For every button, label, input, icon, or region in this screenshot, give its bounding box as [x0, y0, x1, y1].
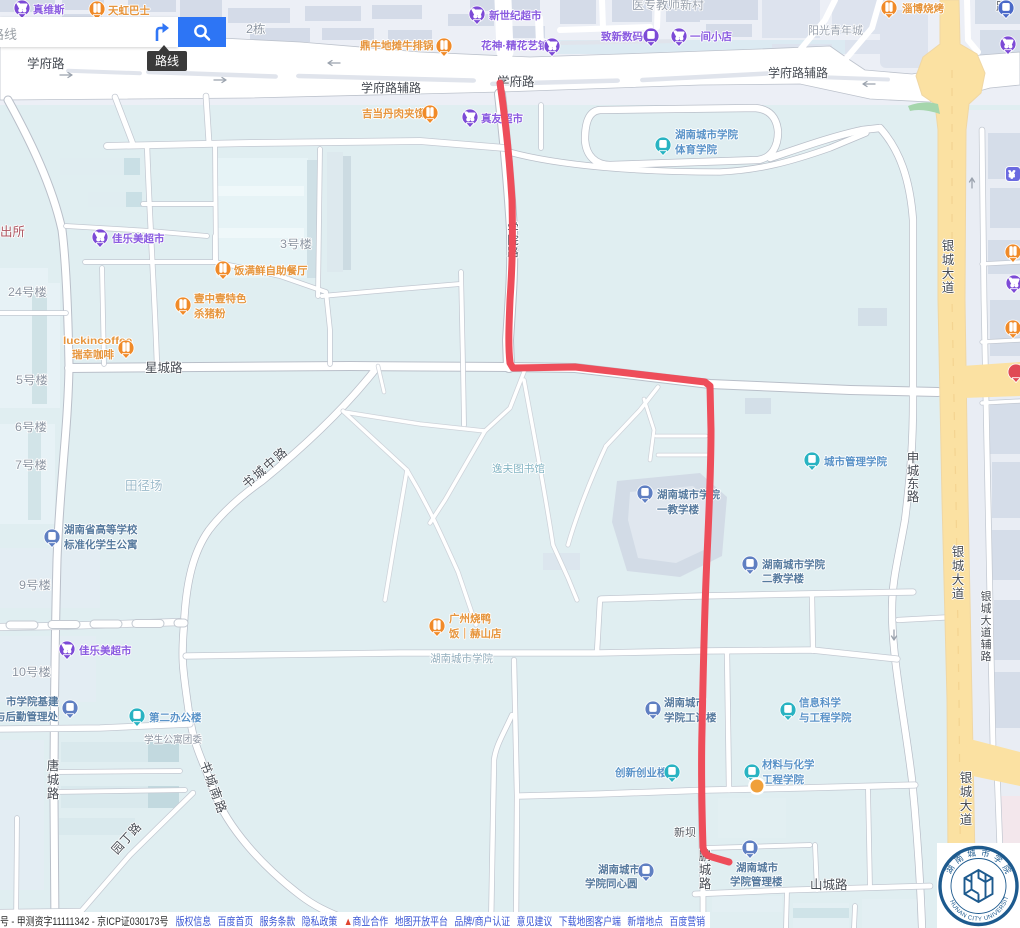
svg-text:壹中壹特色: 壹中壹特色	[194, 292, 247, 305]
svg-text:城市管理学院: 城市管理学院	[824, 455, 887, 468]
svg-text:新坝: 新坝	[674, 825, 696, 839]
svg-text:湖南城市: 湖南城市	[598, 863, 640, 876]
svg-text:湖南省高等学校: 湖南省高等学校	[64, 523, 138, 536]
svg-text:银城大道: 银城大道	[942, 239, 955, 295]
svg-text:学院同心圆: 学院同心圆	[585, 877, 638, 890]
svg-text:鼎牛地摊牛排锅: 鼎牛地摊牛排锅	[360, 39, 434, 52]
svg-text:医专教师新村: 医专教师新村	[632, 0, 704, 12]
svg-text:吉当丹肉夹馍: 吉当丹肉夹馍	[362, 107, 425, 120]
svg-text:花神·精花艺铺: 花神·精花艺铺	[481, 39, 549, 52]
svg-text:天虹巴士: 天虹巴士	[108, 4, 150, 17]
svg-text:10号楼: 10号楼	[12, 665, 51, 679]
svg-text:一间小店: 一间小店	[690, 30, 732, 43]
svg-text:9号楼: 9号楼	[19, 578, 52, 592]
svg-text:逸夫图书馆: 逸夫图书馆	[492, 462, 545, 475]
svg-text:湖南城市: 湖南城市	[736, 861, 778, 874]
svg-text:星城路: 星城路	[145, 360, 183, 375]
svg-text:市学院基建: 市学院基建	[6, 695, 59, 708]
svg-text:2栋: 2栋	[246, 22, 266, 36]
svg-text:5号楼: 5号楼	[16, 373, 49, 387]
svg-text:标准化学生公寓: 标准化学生公寓	[63, 538, 138, 551]
svg-text:湖南城市学院: 湖南城市学院	[675, 128, 738, 141]
svg-text:阳光青年城: 阳光青年城	[808, 23, 863, 37]
svg-text:出所: 出所	[0, 225, 25, 239]
svg-text:山城路: 山城路	[810, 877, 848, 892]
svg-text:学院工训楼: 学院工训楼	[664, 711, 717, 724]
svg-text:¥: ¥	[1008, 170, 1015, 181]
svg-text:工程学院: 工程学院	[762, 773, 804, 786]
svg-text:学府路: 学府路	[27, 56, 65, 71]
svg-text:7号楼: 7号楼	[15, 458, 48, 472]
svg-text:一教学楼: 一教学楼	[657, 503, 699, 516]
svg-text:信息科学: 信息科学	[799, 696, 841, 709]
svg-text:与工程学院: 与工程学院	[799, 711, 852, 724]
svg-text:学府路辅路: 学府路辅路	[361, 80, 421, 95]
svg-text:广州烧鸭: 广州烧鸭	[449, 612, 491, 625]
svg-text:与后勤管理处: 与后勤管理处	[0, 710, 58, 723]
svg-text:材料与化学: 材料与化学	[761, 758, 815, 771]
svg-text:3号楼: 3号楼	[280, 237, 313, 251]
svg-text:学府路辅路: 学府路辅路	[768, 65, 828, 80]
svg-text:学院管理楼: 学院管理楼	[730, 875, 783, 888]
svg-text:体育学院: 体育学院	[675, 143, 717, 156]
svg-text:田径场: 田径场	[125, 479, 163, 493]
svg-text:佳乐美超市: 佳乐美超市	[79, 644, 132, 657]
svg-text:致新数码: 致新数码	[601, 30, 643, 43]
svg-text:饭｜赫山店: 饭｜赫山店	[448, 627, 502, 640]
svg-text:杀猪粉: 杀猪粉	[194, 307, 226, 320]
svg-text:银城大道: 银城大道	[960, 771, 973, 827]
svg-text:新世纪超市: 新世纪超市	[489, 9, 542, 22]
svg-text:24号楼: 24号楼	[8, 285, 47, 299]
svg-text:申城东路: 申城东路	[907, 451, 920, 504]
svg-text:瑞幸咖啡: 瑞幸咖啡	[72, 348, 114, 361]
svg-text:佳乐美超市: 佳乐美超市	[112, 232, 165, 245]
svg-text:湖南城市学院: 湖南城市学院	[430, 652, 493, 665]
svg-text:创新创业楼: 创新创业楼	[614, 766, 668, 779]
svg-text:湖南城市学院: 湖南城市学院	[762, 558, 825, 571]
svg-text:唐城路: 唐城路	[47, 758, 60, 801]
svg-text:真维斯: 真维斯	[33, 3, 65, 16]
svg-text:淄博烧烤: 淄博烧烤	[902, 2, 944, 15]
svg-text:银城大道: 银城大道	[952, 545, 965, 601]
svg-text:学生公寓团委: 学生公寓团委	[144, 733, 202, 746]
svg-text:饭满鲜自助餐厅: 饭满鲜自助餐厅	[233, 264, 308, 277]
svg-text:二教学楼: 二教学楼	[762, 572, 804, 585]
svg-text:6号楼: 6号楼	[15, 420, 48, 434]
svg-text:银城大道辅路: 银城大道辅路	[981, 589, 992, 663]
svg-text:第二办公楼: 第二办公楼	[149, 711, 202, 724]
